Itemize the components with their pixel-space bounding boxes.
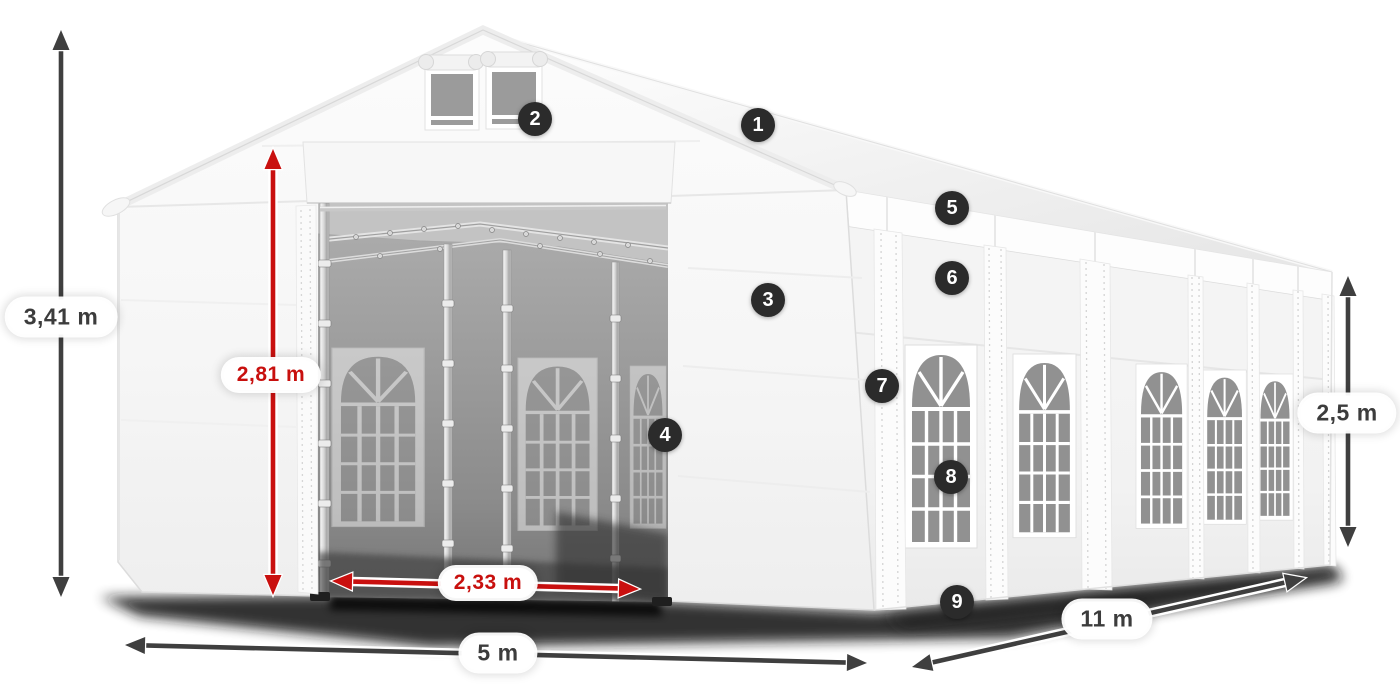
callout-badge-2[interactable]: 2 [518, 102, 552, 136]
total-height-label: 3,41 m [8, 300, 115, 335]
callout-badge-8[interactable]: 8 [934, 460, 968, 494]
dimension-arrows-layer [0, 0, 1400, 700]
callout-badge-9[interactable]: 9 [940, 585, 974, 619]
entrance-height-label: 2,81 m [224, 360, 318, 390]
front-width-label: 5 m [461, 636, 534, 671]
tent-dimension-diagram: 3,41 m2,81 m2,33 m5 m11 m2,5 m123456789 [0, 0, 1400, 700]
callout-badge-3[interactable]: 3 [751, 283, 785, 317]
side-length-label: 11 m [1064, 602, 1149, 637]
callout-badge-1[interactable]: 1 [741, 108, 775, 142]
callout-badge-4[interactable]: 4 [648, 418, 682, 452]
callout-badge-6[interactable]: 6 [935, 261, 969, 295]
side-height-label: 2,5 m [1300, 396, 1393, 431]
callout-badge-5[interactable]: 5 [935, 191, 969, 225]
callout-badge-7[interactable]: 7 [865, 369, 899, 403]
entrance-width-label: 2,33 m [441, 568, 535, 598]
